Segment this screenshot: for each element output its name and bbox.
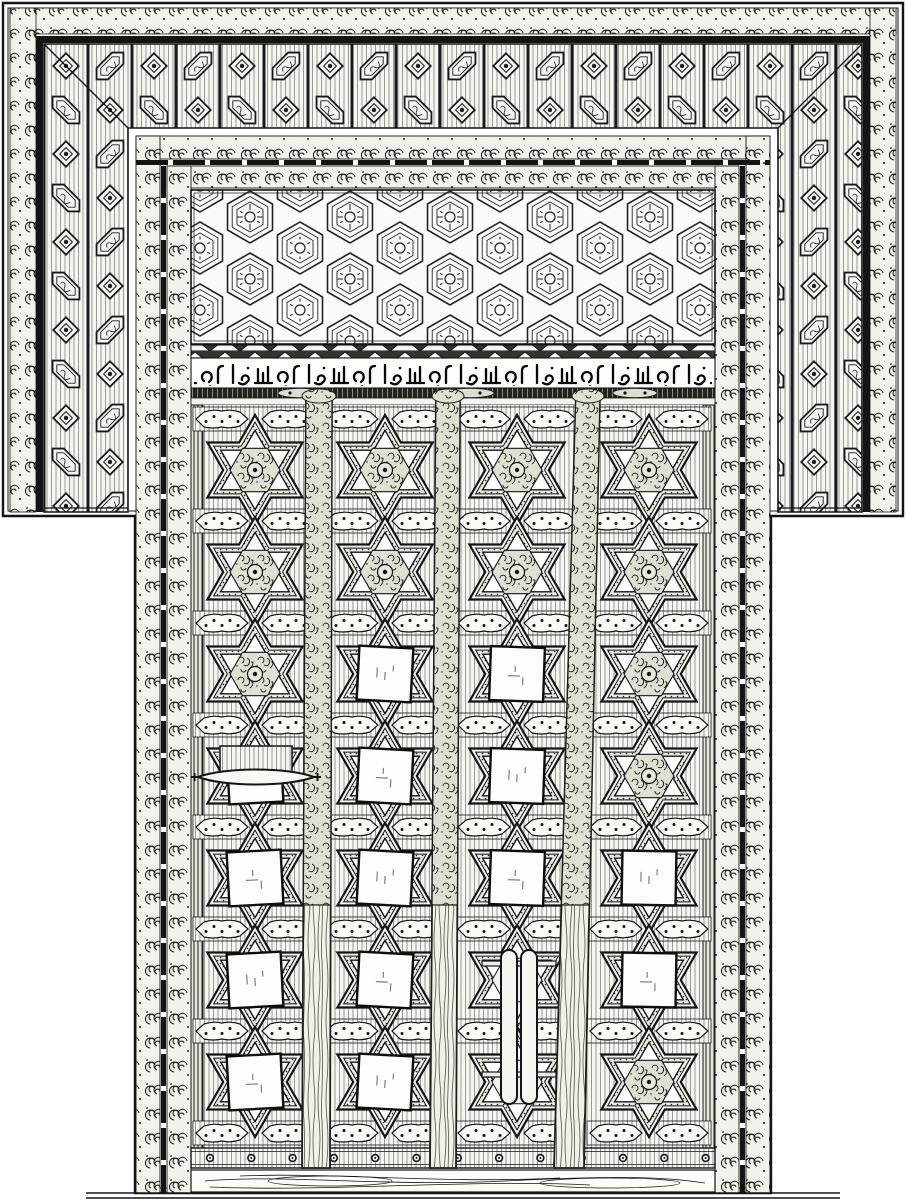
handle-bar [501, 950, 517, 1104]
engraving-plate: Black-and-white engraved plate of an orn… [0, 0, 906, 1200]
beaded-cartouche [196, 410, 248, 428]
handle-bar [521, 950, 537, 1104]
beaded-cartouche [326, 1124, 378, 1142]
beaded-cartouche [326, 920, 378, 938]
beaded-cartouche [458, 818, 510, 836]
beaded-cartouche [524, 614, 576, 632]
beaded-cartouche [656, 1022, 708, 1040]
beaded-cartouche [590, 614, 642, 632]
square-inset-panel [489, 646, 545, 702]
beaded-cartouche [656, 1124, 708, 1142]
beaded-cartouche [656, 614, 708, 632]
beaded-cartouche [656, 410, 708, 428]
square-inset-panel [622, 953, 677, 1008]
beaded-cartouche [196, 1022, 248, 1040]
batten-foliage [303, 392, 332, 905]
batten-foliage [432, 392, 460, 905]
square-inset-panel [489, 850, 545, 906]
beaded-cartouche [196, 716, 248, 734]
inner-scroll-top-outer [136, 136, 770, 159]
square-inset-panel [622, 851, 677, 906]
beaded-cartouche [196, 818, 248, 836]
beaded-cartouche [196, 614, 248, 632]
beaded-cartouche [458, 614, 510, 632]
beaded-cartouche [458, 410, 510, 428]
beaded-cartouche [326, 614, 378, 632]
beaded-cartouche [524, 512, 576, 530]
beaded-cartouche [656, 818, 708, 836]
beaded-cartouche [196, 512, 248, 530]
honeycomb-panel [191, 190, 715, 344]
jamb-left [167, 166, 191, 1193]
beaded-cartouche [590, 920, 642, 938]
beaded-cartouche [196, 1124, 248, 1142]
beaded-cartouche [590, 1022, 642, 1040]
beaded-cartouche [326, 410, 378, 428]
beaded-cartouche [458, 512, 510, 530]
beaded-cartouche [656, 716, 708, 734]
square-inset-panel [489, 748, 545, 804]
handle-pin [482, 1072, 556, 1077]
beaded-cartouche [326, 716, 378, 734]
square-inset-panel [227, 1054, 284, 1111]
handle-pin [482, 961, 556, 966]
beaded-cartouche [458, 920, 510, 938]
beaded-cartouche [196, 920, 248, 938]
square-inset-panel [357, 850, 414, 907]
beaded-cartouche [590, 716, 642, 734]
inner-scroll-right-outer [746, 136, 770, 1193]
square-inset-panel [357, 748, 414, 805]
square-inset-panel [357, 952, 414, 1009]
beaded-cartouche [458, 716, 510, 734]
square-inset-panel [227, 952, 284, 1009]
beaded-cartouche [326, 818, 378, 836]
jamb-right [715, 166, 739, 1193]
beaded-cartouche [656, 920, 708, 938]
beaded-cartouche [458, 1124, 510, 1142]
zigzag-border [191, 345, 715, 358]
inner-scroll-left-outer [136, 136, 160, 1193]
square-inset-panel [357, 1054, 414, 1111]
inner-scroll-top-inner [167, 166, 739, 188]
square-inset-panel [227, 850, 284, 907]
square-inset-panel [357, 646, 414, 703]
beaded-cartouche [590, 1124, 642, 1142]
beaded-cartouche [590, 818, 642, 836]
beaded-cartouche [326, 1022, 378, 1040]
beaded-cartouche [326, 512, 378, 530]
arabic-inscription [194, 360, 712, 386]
beaded-cartouche [524, 410, 576, 428]
beaded-cartouche [656, 512, 708, 530]
